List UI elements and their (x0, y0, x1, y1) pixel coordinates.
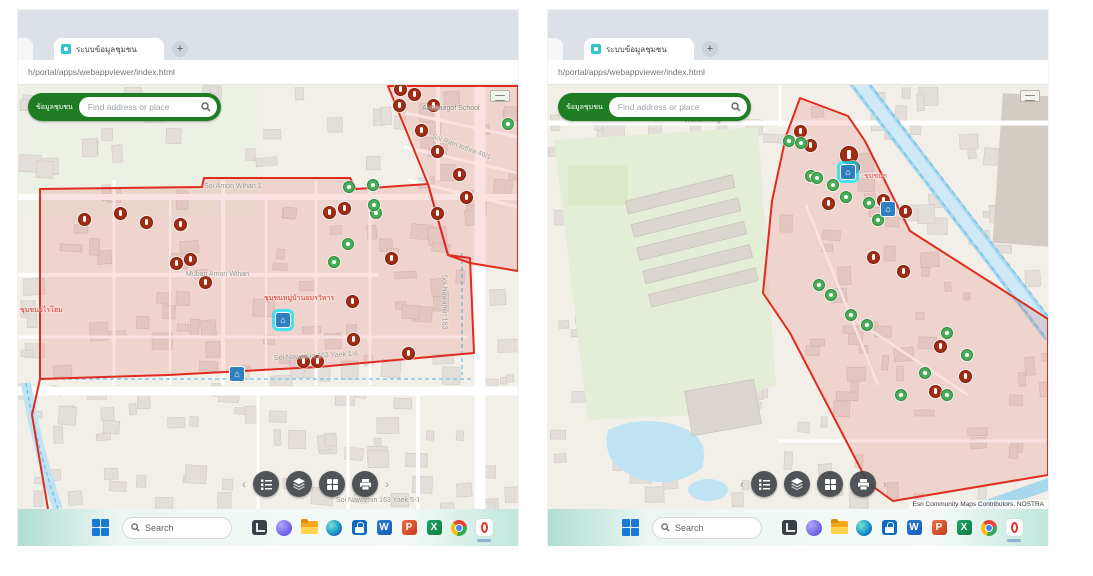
desktop-screenshot-pair: ระบบข้อมูลชุมชน + h/portal/apps/webappvi… (0, 0, 1093, 576)
new-tab-button[interactable]: + (702, 41, 718, 57)
incident-marker[interactable] (453, 168, 466, 181)
ok-status-marker[interactable] (861, 319, 873, 331)
legend-button[interactable] (253, 471, 279, 497)
incident-marker[interactable] (934, 340, 947, 353)
incident-marker[interactable] (415, 124, 428, 137)
incident-marker[interactable] (929, 385, 942, 398)
incident-marker[interactable] (899, 205, 912, 218)
incident-marker[interactable] (385, 252, 398, 265)
new-tab-button[interactable]: + (172, 41, 188, 57)
taskbar-search-label: Search (145, 523, 174, 533)
ok-status-marker[interactable] (827, 179, 839, 191)
incident-marker[interactable] (114, 207, 127, 220)
widget-dock: ‹ › (740, 471, 887, 497)
pinned-apps (248, 514, 495, 542)
search-placeholder: Find address or place (618, 102, 700, 112)
search-icon (731, 102, 741, 112)
ok-status-marker[interactable] (343, 181, 355, 193)
ok-status-marker[interactable] (840, 191, 852, 203)
incident-marker[interactable] (460, 191, 473, 204)
taskbar-store-icon[interactable] (348, 514, 370, 542)
tab-strip: ระบบข้อมูลชุมชน + (548, 10, 1048, 60)
incident-marker[interactable] (78, 213, 91, 226)
map-search-widget: ข้อมูลชุมชน Find address or place (28, 93, 221, 121)
incident-marker[interactable] (297, 355, 310, 368)
layers-button[interactable] (286, 471, 312, 497)
dock-prev-icon[interactable]: ‹ (242, 471, 246, 497)
address-bar[interactable]: h/portal/apps/webappviewer/index.html (548, 60, 1048, 85)
windows-taskbar: Search (18, 509, 518, 546)
taskbar-opera-icon[interactable] (1003, 514, 1025, 542)
incident-marker[interactable] (897, 265, 910, 278)
incident-marker[interactable] (822, 197, 835, 210)
incident-marker[interactable] (346, 295, 359, 308)
ok-status-marker[interactable] (342, 238, 354, 250)
incident-marker[interactable] (959, 370, 972, 383)
pond-small (688, 479, 728, 501)
ok-status-marker[interactable] (795, 137, 807, 149)
map-canvas[interactable]: ⌂⌂ Al-Asaagof SchoolMuban Amon WihanSoi … (18, 85, 518, 509)
dock-prev-icon[interactable]: ‹ (740, 471, 744, 497)
ok-status-marker[interactable] (863, 197, 875, 209)
app-favicon-icon (61, 44, 71, 54)
incident-marker[interactable] (323, 206, 336, 219)
start-button[interactable] (622, 518, 642, 538)
taskbar-taskview-icon[interactable] (248, 514, 270, 542)
ok-status-marker[interactable] (895, 389, 907, 401)
taskbar-powerpoint-icon[interactable] (398, 514, 420, 542)
print-button[interactable] (352, 471, 378, 497)
house-icon: ⌂ (885, 204, 890, 214)
taskbar-word-icon[interactable] (903, 514, 925, 542)
windows-taskbar: Search (548, 509, 1048, 546)
house-icon: ⌂ (234, 369, 239, 379)
app-favicon-icon (591, 44, 601, 54)
ok-status-marker[interactable] (941, 327, 953, 339)
taskbar-search[interactable]: Search (122, 517, 232, 539)
dock-next-icon[interactable]: › (385, 471, 389, 497)
ok-status-marker[interactable] (783, 135, 795, 147)
incident-marker[interactable] (140, 216, 153, 229)
search-icon (131, 523, 140, 532)
incident-marker[interactable] (311, 355, 324, 368)
taskbar-chrome-icon[interactable] (448, 514, 470, 542)
taskbar-excel-icon[interactable] (953, 514, 975, 542)
ok-status-marker[interactable] (961, 349, 973, 361)
browser-tab[interactable]: ระบบข้อมูลชุมชน (54, 38, 164, 60)
browser-window-left: ระบบข้อมูลชุมชน + h/portal/apps/webappvi… (18, 10, 518, 545)
incident-marker[interactable] (867, 251, 880, 264)
taskbar-powerpoint-icon[interactable] (928, 514, 950, 542)
incident-marker[interactable] (431, 207, 444, 220)
map-search-widget: ข้อมูลชุมชน Find address or place (558, 93, 751, 121)
pinned-apps (778, 514, 1025, 542)
house-icon: ⌂ (280, 315, 285, 325)
app-title: ข้อมูลชุมชน (36, 102, 73, 113)
basemap-gallery-button[interactable] (817, 471, 843, 497)
browser-tab[interactable]: ระบบข้อมูลชุมชน (584, 38, 694, 60)
incident-marker[interactable] (431, 145, 444, 158)
ok-status-marker[interactable] (941, 389, 953, 401)
ok-status-marker[interactable] (811, 172, 823, 184)
poi-building-icon[interactable]: ⌂ (275, 312, 291, 328)
search-icon (201, 102, 211, 112)
map-attribution: Esri Community Maps Contributors, NOSTRA (909, 500, 1048, 509)
taskbar-copilot-icon[interactable] (803, 514, 825, 542)
taskbar-copilot-icon[interactable] (273, 514, 295, 542)
ok-status-marker[interactable] (502, 118, 514, 130)
house-icon: ⌂ (845, 167, 850, 177)
map-canvas[interactable]: ⌂⌂ Wanon Rngชุมชนฯ ข้อมูลชุมชน Find addr… (548, 85, 1048, 509)
widget-dock: ‹ › (242, 471, 389, 497)
layers-button[interactable] (784, 471, 810, 497)
taskbar-edge-icon[interactable] (323, 514, 345, 542)
collapsed-widget-button[interactable] (1020, 90, 1040, 102)
taskbar-file-explorer-icon[interactable] (828, 514, 850, 542)
search-input[interactable]: Find address or place (79, 97, 217, 117)
poi-building-icon[interactable]: ⌂ (840, 164, 856, 180)
app-title: ข้อมูลชุมชน (566, 102, 603, 113)
ok-status-marker[interactable] (919, 367, 931, 379)
taskbar-opera-icon[interactable] (473, 514, 495, 542)
tab-title: ระบบข้อมูลชุมชน (76, 43, 137, 56)
taskbar-word-icon[interactable] (373, 514, 395, 542)
taskbar-file-explorer-icon[interactable] (298, 514, 320, 542)
basemap-gallery-button[interactable] (319, 471, 345, 497)
poi-building-icon[interactable]: ⌂ (229, 366, 245, 382)
url-text: h/portal/apps/webappviewer/index.html (28, 67, 175, 77)
search-icon (661, 523, 670, 532)
taskbar-chrome-icon[interactable] (978, 514, 1000, 542)
ok-status-marker[interactable] (825, 289, 837, 301)
incident-marker[interactable] (347, 333, 360, 346)
legend-button[interactable] (751, 471, 777, 497)
url-text: h/portal/apps/webappviewer/index.html (558, 67, 705, 77)
incident-marker[interactable] (338, 202, 351, 215)
poi-building-icon[interactable]: ⌂ (880, 201, 896, 217)
address-bar[interactable]: h/portal/apps/webappviewer/index.html (18, 60, 518, 85)
collapsed-widget-button[interactable] (490, 90, 510, 102)
incident-marker[interactable] (427, 99, 440, 112)
taskbar-excel-icon[interactable] (423, 514, 445, 542)
background-tab-partial[interactable] (548, 38, 563, 60)
ok-status-marker[interactable] (367, 179, 379, 191)
background-tab-partial[interactable] (18, 38, 33, 60)
taskbar-store-icon[interactable] (878, 514, 900, 542)
tab-title: ระบบข้อมูลชุมชน (606, 43, 667, 56)
incident-marker[interactable] (402, 347, 415, 360)
start-button[interactable] (92, 518, 112, 538)
tab-strip: ระบบข้อมูลชุมชน + (18, 10, 518, 60)
taskbar-search-label: Search (675, 523, 704, 533)
search-placeholder: Find address or place (88, 102, 170, 112)
incident-marker[interactable] (199, 276, 212, 289)
ok-status-marker[interactable] (368, 199, 380, 211)
taskbar-taskview-icon[interactable] (778, 514, 800, 542)
incident-marker[interactable] (174, 218, 187, 231)
search-input[interactable]: Find address or place (609, 97, 747, 117)
ok-status-marker[interactable] (813, 279, 825, 291)
incident-marker[interactable] (184, 253, 197, 266)
taskbar-search[interactable]: Search (652, 517, 762, 539)
incident-marker[interactable] (393, 99, 406, 112)
incident-marker[interactable] (170, 257, 183, 270)
dock-next-icon[interactable]: › (883, 471, 887, 497)
ok-status-marker[interactable] (328, 256, 340, 268)
incident-marker[interactable] (408, 88, 421, 101)
taskbar-edge-icon[interactable] (853, 514, 875, 542)
ok-status-marker[interactable] (845, 309, 857, 321)
print-button[interactable] (850, 471, 876, 497)
browser-window-right: ระบบข้อมูลชุมชน + h/portal/apps/webappvi… (548, 10, 1048, 545)
